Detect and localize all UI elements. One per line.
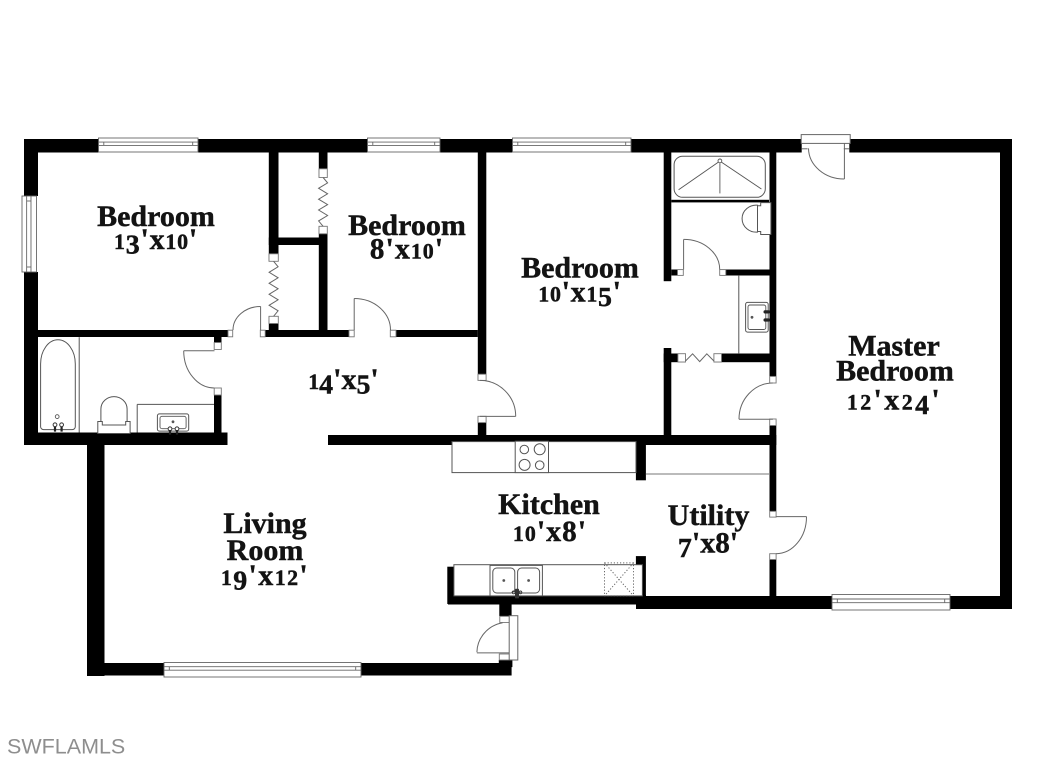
svg-text:SWFLAMLS: SWFLAMLS: [7, 735, 125, 759]
